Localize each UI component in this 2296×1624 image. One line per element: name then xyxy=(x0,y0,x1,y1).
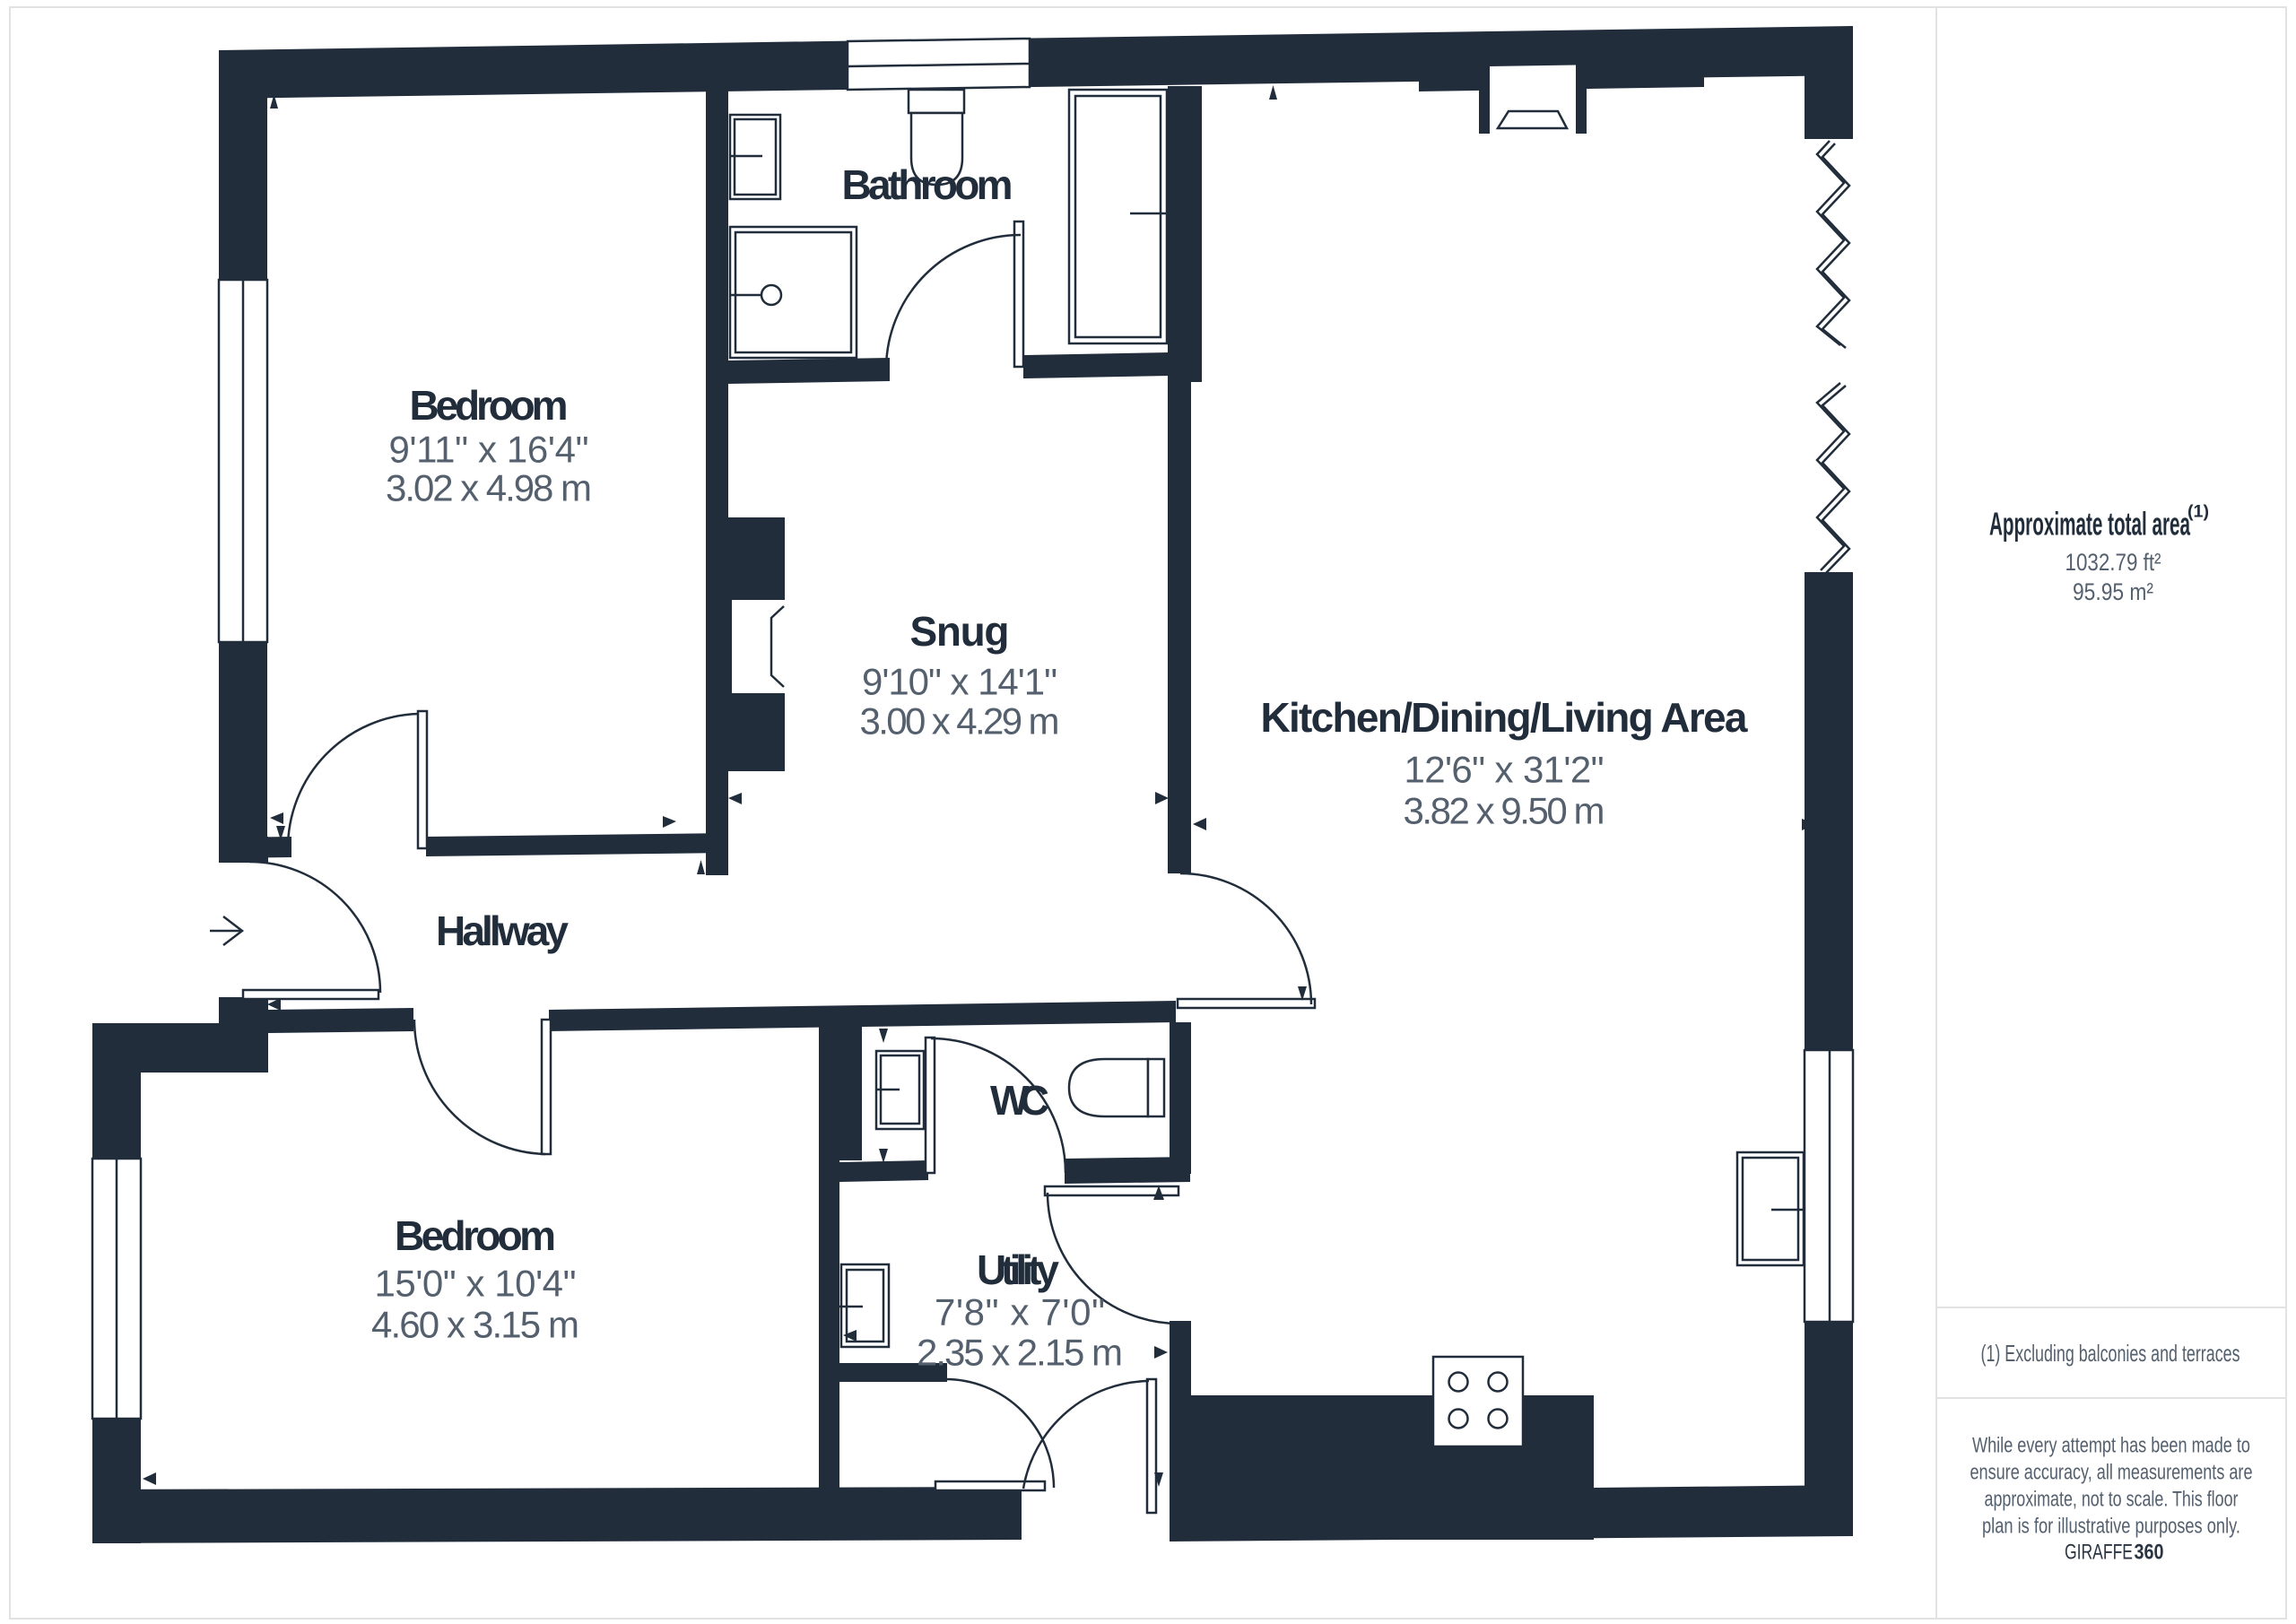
svg-text:2.35 x 2.15 m: 2.35 x 2.15 m xyxy=(917,1332,1123,1374)
svg-text:ensure accuracy, all measureme: ensure accuracy, all measurements are xyxy=(1970,1461,2253,1485)
svg-text:Approximate total area: Approximate total area xyxy=(1989,506,2191,543)
svg-text:Bedroom: Bedroom xyxy=(395,1212,556,1259)
svg-text:While every attempt has been m: While every attempt has been made to xyxy=(1972,1434,2250,1458)
svg-text:3.00 x 4.29 m: 3.00 x 4.29 m xyxy=(860,700,1060,743)
svg-text:WC: WC xyxy=(990,1077,1049,1124)
svg-text:approximate, not to scale. Thi: approximate, not to scale. This floor xyxy=(1985,1488,2239,1512)
svg-text:Bathroom: Bathroom xyxy=(842,161,1013,208)
svg-text:Snug: Snug xyxy=(910,608,1010,655)
svg-text:Utility: Utility xyxy=(977,1246,1059,1293)
svg-text:Kitchen/Dining/Living Area: Kitchen/Dining/Living Area xyxy=(1261,694,1748,741)
svg-text:9'10" x 14'1": 9'10" x 14'1" xyxy=(862,661,1057,703)
svg-text:(1) Excluding balconies and te: (1) Excluding balconies and terraces xyxy=(1981,1340,2240,1367)
svg-text:Hallway: Hallway xyxy=(436,908,569,954)
svg-text:12'6" x 31'2": 12'6" x 31'2" xyxy=(1405,749,1605,791)
svg-text:Bedroom: Bedroom xyxy=(410,382,569,429)
svg-text:95.95 m²: 95.95 m² xyxy=(2073,578,2153,605)
svg-text:GIRAFFE: GIRAFFE xyxy=(2065,1541,2133,1565)
svg-text:360: 360 xyxy=(2135,1541,2164,1565)
svg-text:7'8" x 7'0": 7'8" x 7'0" xyxy=(935,1291,1105,1333)
svg-text:1032.79 ft²: 1032.79 ft² xyxy=(2066,549,2161,576)
svg-text:(1): (1) xyxy=(2187,503,2209,522)
svg-text:4.60 x 3.15 m: 4.60 x 3.15 m xyxy=(371,1304,579,1346)
svg-text:15'0" x 10'4": 15'0" x 10'4" xyxy=(375,1263,577,1305)
svg-text:9'11" x 16'4": 9'11" x 16'4" xyxy=(389,429,589,471)
svg-text:plan is for illustrative purpo: plan is for illustrative purposes only. xyxy=(1982,1515,2240,1539)
svg-text:3.82 x 9.50 m: 3.82 x 9.50 m xyxy=(1404,790,1605,832)
svg-text:3.02 x 4.98 m: 3.02 x 4.98 m xyxy=(386,467,592,509)
